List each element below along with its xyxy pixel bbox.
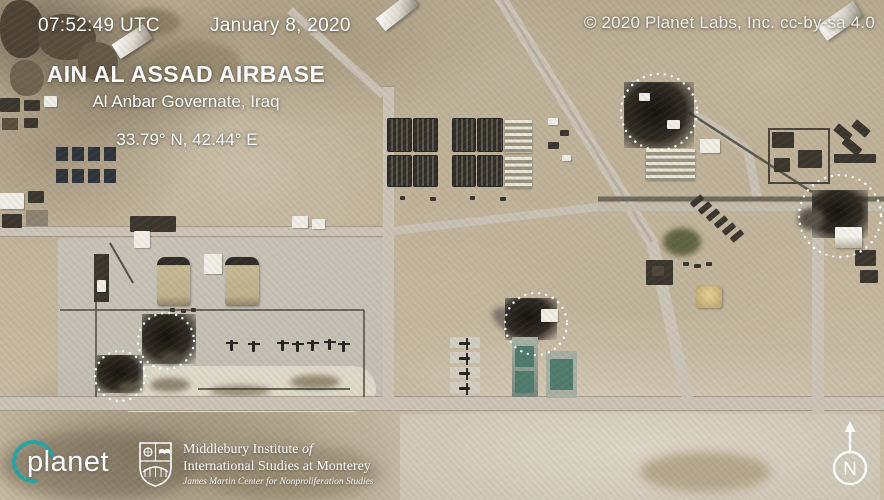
arch-hangar bbox=[225, 257, 259, 306]
north-label: N bbox=[843, 459, 857, 480]
arch-hangar bbox=[157, 257, 190, 306]
satellite-image: 07:52:49 UTC January 8, 2020 © 2020 Plan… bbox=[0, 0, 884, 500]
institute-line1-italic: of bbox=[302, 442, 313, 457]
institute-text: Middlebury Institute of International St… bbox=[183, 442, 373, 487]
institute-line2: International Studies at Monterey bbox=[183, 459, 373, 475]
north-arrow-icon bbox=[845, 421, 856, 432]
base-title: AIN AL ASSAD AIRBASE bbox=[40, 61, 332, 88]
institute-line1: Middlebury Institute bbox=[183, 442, 299, 457]
base-subtitle: Al Anbar Governate, Iraq bbox=[40, 92, 332, 112]
south-apron bbox=[400, 414, 880, 500]
date: January 8, 2020 bbox=[210, 15, 351, 37]
base-coordinates: 33.79° N, 42.44° E bbox=[42, 130, 332, 150]
middlebury-shield-icon bbox=[138, 441, 173, 488]
north-compass-icon: N bbox=[824, 416, 876, 488]
title-block: AIN AL ASSAD AIRBASE Al Anbar Governate,… bbox=[40, 61, 332, 112]
planet-wordmark: planet bbox=[27, 446, 109, 479]
tent bbox=[696, 286, 722, 308]
copyright-credit: © 2020 Planet Labs, Inc. cc-by-sa 4.0 bbox=[584, 13, 875, 33]
timestamp: 07:52:49 UTC bbox=[38, 15, 160, 37]
institute-line3: James Martin Center for Nonproliferation… bbox=[183, 477, 373, 487]
